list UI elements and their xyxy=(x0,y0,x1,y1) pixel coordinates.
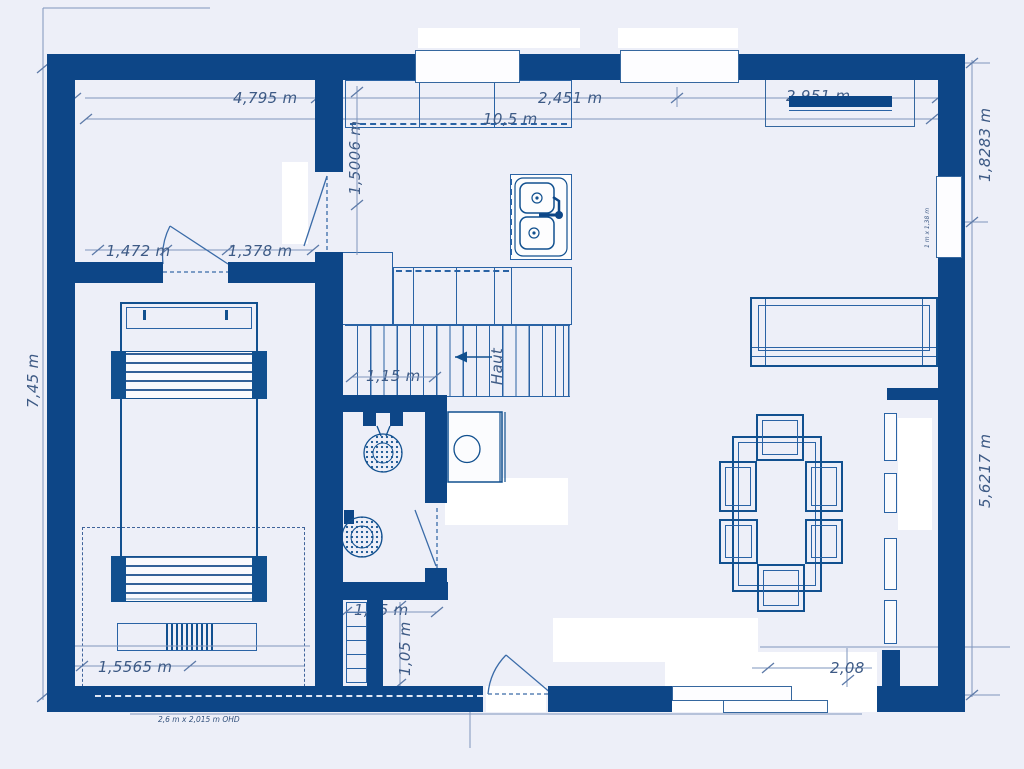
wall-bottom-mid xyxy=(548,686,672,712)
overhead-door-dashes xyxy=(95,695,483,697)
wall-bath-mid xyxy=(425,412,447,503)
patio-door-panel-1 xyxy=(672,686,792,701)
wall-bedroom-a xyxy=(47,262,163,283)
wall-central-lower xyxy=(315,252,343,686)
stairs-up-arrow xyxy=(455,352,492,363)
wall-right-block xyxy=(882,650,900,686)
window-top-1 xyxy=(415,50,520,83)
window-right xyxy=(936,176,962,258)
wall-bottom-right xyxy=(877,686,965,712)
window-top-2 xyxy=(620,50,739,83)
wall-hall xyxy=(367,600,383,686)
wall-bath-bottom xyxy=(343,582,448,600)
wall-bath-stub xyxy=(425,568,447,582)
wall-central-upper xyxy=(315,80,343,172)
wall-bottom-left xyxy=(47,686,483,712)
wall-bath-top xyxy=(343,395,447,412)
patio-door-panel-2 xyxy=(723,700,828,713)
floor-plan-canvas: 4,795 m 2,451 m 2,951 m 10,5 m 7,45 m 1,… xyxy=(0,0,1024,769)
overlay-layer xyxy=(0,0,1024,769)
wall-right-stub xyxy=(887,388,938,400)
wall-left xyxy=(47,54,75,712)
wall-right xyxy=(938,54,965,712)
